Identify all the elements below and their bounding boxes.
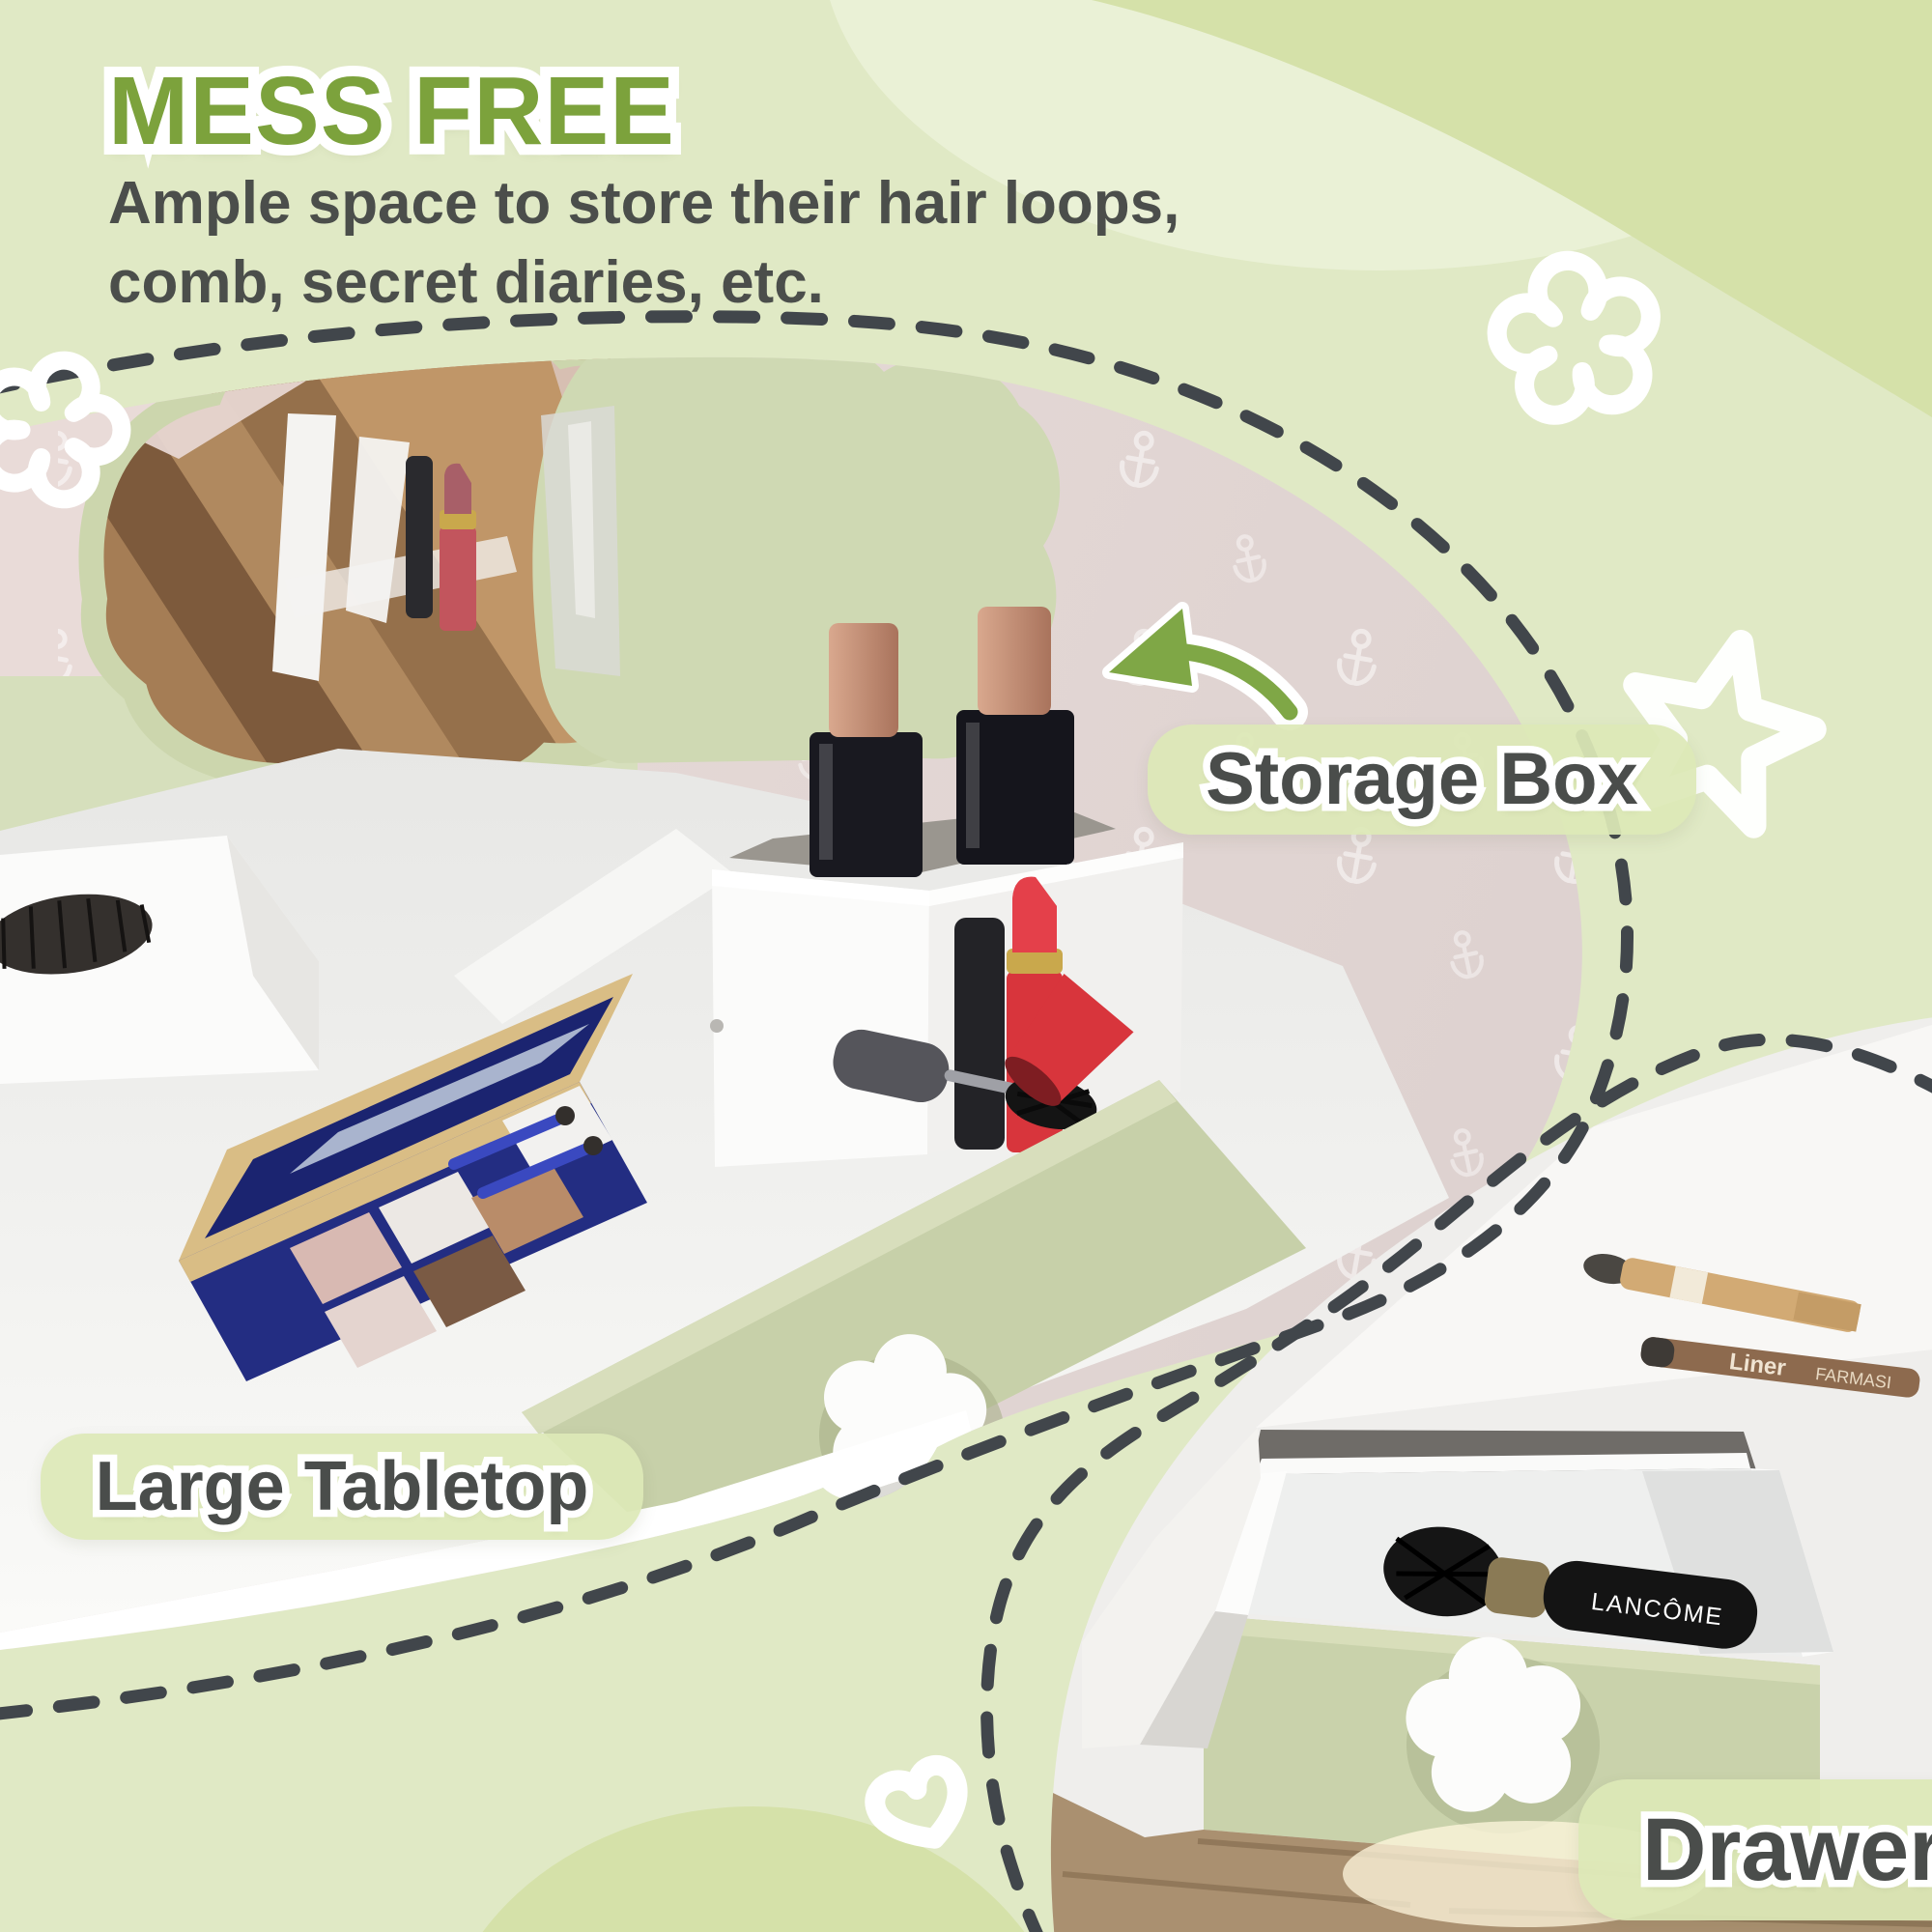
drawer-callout: Drawer Drawer bbox=[1578, 1779, 1932, 1920]
page-title: MESS FREE MESS FREE bbox=[108, 56, 675, 167]
large-tabletop-label: Large Tabletop bbox=[96, 1448, 589, 1525]
subtitle: Ample space to store their hair loops, c… bbox=[108, 164, 1179, 323]
subtitle-line1: Ample space to store their hair loops, bbox=[108, 164, 1179, 243]
storage-box-label: Storage Box bbox=[1206, 738, 1638, 820]
drawer-label: Drawer bbox=[1642, 1801, 1932, 1899]
product-feature-graphic: Liner FARMASI LANCÔME bbox=[0, 0, 1932, 1932]
subtitle-line2: comb, secret diaries, etc. bbox=[108, 243, 1179, 323]
storage-box-callout: Storage Box Storage Box bbox=[1148, 724, 1696, 835]
page-title-text: MESS FREE bbox=[108, 57, 675, 165]
large-tabletop-callout: Large Tabletop Large Tabletop bbox=[41, 1434, 643, 1540]
